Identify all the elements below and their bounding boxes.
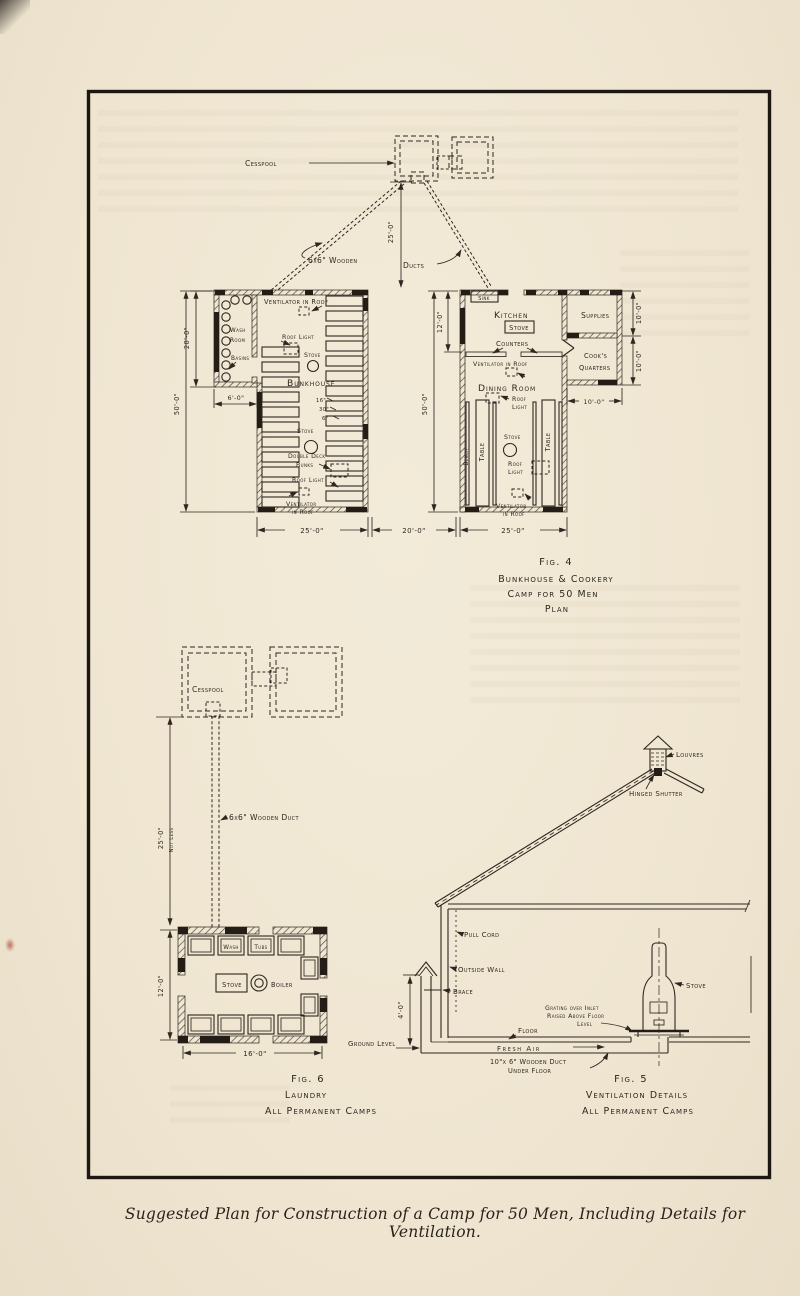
- label-wooden-duct: 6x6" Wooden Duct: [229, 813, 300, 822]
- label-light-b: Light: [508, 469, 523, 476]
- label-cesspool-fig6: Cesspool: [192, 685, 224, 694]
- dim-annex-width: 10'-0": [584, 399, 605, 406]
- label-grating-2: Raised Above Floor: [547, 1013, 604, 1020]
- roof-light-dining-leader: [501, 396, 509, 399]
- page-caption: Suggested Plan for Construction of a Cam…: [90, 1205, 780, 1241]
- label-wash: Wash: [230, 328, 246, 334]
- dim-laundry-width: 16'-0": [243, 1050, 266, 1058]
- duct-label-leader: [590, 1053, 608, 1068]
- label-grating-3: Level: [577, 1021, 593, 1028]
- label-roof-a: Roof: [512, 396, 527, 403]
- bunks-right-column: [326, 296, 363, 501]
- fig4-title-3: Plan: [545, 604, 569, 615]
- label-cooks: Cook's: [584, 352, 607, 360]
- label-ventilator-top: Ventilator in Roof: [264, 298, 328, 306]
- fresh-air-intake: [415, 962, 441, 1053]
- label-ducts: Ducts: [403, 261, 424, 270]
- label-bench: Bench: [464, 448, 470, 465]
- stove-b-circle: [305, 441, 318, 454]
- fig5-stove: [629, 928, 689, 1066]
- label-duct-size: 10"x 6" Wooden Duct: [490, 1058, 567, 1066]
- label-grating-1: Grating over Inlet: [545, 1005, 599, 1012]
- label-roof-light-b: Roof Light: [292, 477, 324, 484]
- fig6-title-2: All Permanent Camps: [265, 1106, 377, 1117]
- under-floor-duct: [421, 1037, 668, 1053]
- label-duct-material: 6x6" Wooden: [308, 256, 358, 265]
- label-table-b: Table: [544, 433, 552, 453]
- stove-dining-circle: [504, 444, 517, 457]
- label-stove-b: Stove: [297, 428, 314, 435]
- label-floor: Floor: [518, 1027, 538, 1035]
- laundry-tubs: [188, 936, 318, 1034]
- label-fig5-stove: Stove: [686, 982, 706, 990]
- dim-intake-height: 4'-0": [397, 1001, 405, 1019]
- label-table-a: Table: [478, 443, 486, 463]
- dim-annex-height: 20'-0": [183, 327, 191, 349]
- label-supplies: Supplies: [581, 311, 609, 320]
- louvres-leader: [666, 754, 674, 757]
- fig5-number: Fig. 5: [614, 1074, 648, 1085]
- fig4-title-1: Bunkhouse & Cookery: [498, 574, 614, 585]
- fig4-cookery-building: Sink Kitchen Stove Counters Ventilator i…: [421, 290, 643, 518]
- label-fresh-air: Fresh Air: [497, 1045, 541, 1053]
- dim-gap: 20'-0": [402, 527, 425, 535]
- hinged-shutter: [654, 768, 662, 776]
- bunk-dim-2: 30": [319, 407, 329, 413]
- annex-door-swing: [563, 340, 574, 356]
- fig6-laundry: Cesspool 6x6" Wooden Duct 25'-0" Not Les…: [156, 647, 377, 1117]
- fig6-cesspool: Cesspool: [182, 647, 342, 717]
- fig4-bunkhouse-building: Wash Room Basins Ventilator in Roof: [173, 290, 368, 516]
- dim-kitchen-depth: 12'-0": [436, 311, 444, 333]
- label-quarters: Quarters: [579, 364, 610, 372]
- label-tubs: Tubs: [253, 945, 267, 951]
- fig4-title-2: Camp for 50 Men: [507, 589, 598, 600]
- label-pull-cord: Pull Cord: [464, 931, 499, 939]
- grating-leader: [601, 1023, 632, 1031]
- label-light-a: Light: [512, 404, 527, 411]
- label-ventilator: Ventilator: [286, 501, 317, 508]
- boiler-outer: [251, 975, 267, 991]
- label-dining-room: Dining Room: [478, 383, 536, 394]
- bunk-dim-3: 6": [322, 416, 329, 422]
- fig6-title-1: Laundry: [285, 1090, 327, 1101]
- label-stove-a: Stove: [304, 352, 321, 359]
- label-brace: Brace: [453, 988, 473, 996]
- fig5-title-1: Ventilation Details: [586, 1090, 688, 1101]
- fig6-caption: Fig. 6 Laundry All Permanent Camps: [265, 1074, 377, 1117]
- label-stove-dining: Stove: [504, 434, 521, 441]
- ventilator-bottom-leader: [289, 492, 297, 496]
- label-basins: Basins: [231, 356, 249, 362]
- fig4-number: Fig. 4: [539, 557, 573, 568]
- fig6-number: Fig. 6: [291, 1074, 325, 1085]
- label-counters: Counters: [496, 340, 528, 348]
- counter-right: [521, 352, 562, 357]
- dim-distance-note: Not Less: [169, 828, 175, 853]
- label-under-floor: Under Floor: [508, 1067, 551, 1075]
- label-cesspool: Cesspool: [245, 159, 277, 168]
- dim-cookery-height: 50'-0": [421, 393, 429, 415]
- dim-supplies: 10'-0": [635, 302, 643, 324]
- fig4-wooden-ducts: 6x6" Wooden Ducts 25'-0": [270, 181, 491, 294]
- ventilator-kitchen-leader: [518, 373, 525, 377]
- dim-annex-width: 6'-0": [228, 395, 245, 402]
- stove-leader: [675, 983, 684, 985]
- outside-wall-leader: [450, 967, 456, 969]
- label-ground-level: Ground Level: [348, 1040, 396, 1048]
- dim-bunkhouse-width: 25'-0": [300, 527, 323, 535]
- label-ventilator-dining: Ventilator: [496, 503, 527, 510]
- fig4-cesspool: Cesspool: [245, 136, 493, 183]
- label-double-deck: Double Deck: [288, 453, 325, 460]
- label-hinged-shutter: Hinged Shutter: [629, 790, 683, 798]
- label-in-roof-dining: in Roof: [503, 511, 525, 518]
- louvre-slats: [651, 753, 665, 765]
- label-roof-light-a: Roof Light: [282, 334, 314, 341]
- stove-a-circle: [308, 361, 319, 372]
- roof-light-a-leader: [281, 341, 290, 345]
- brace-leader: [443, 990, 451, 991]
- fig5-caption: Fig. 5 Ventilation Details All Permanent…: [582, 1074, 694, 1117]
- label-laundry-stove: Stove: [222, 981, 242, 989]
- ventilator-top-leader: [312, 306, 322, 311]
- label-outside-wall: Outside Wall: [458, 966, 505, 974]
- label-kitchen: Kitchen: [494, 310, 528, 321]
- bunk-dim-1: 16": [316, 398, 326, 404]
- label-bunks: Bunks: [296, 462, 313, 469]
- label-bunkhouse: Bunkhouse: [287, 378, 335, 389]
- label-ventilator-kitchen: Ventilator in Roof: [473, 361, 528, 368]
- wooden-duct-leader: [221, 817, 227, 820]
- double-deck-leader: [319, 464, 330, 469]
- label-boiler: Boiler: [271, 981, 293, 989]
- label-stove-kitchen: Stove: [509, 324, 529, 332]
- laundry-building: Wash Tubs Stove Boiler: [178, 927, 327, 1043]
- label-sink: Sink: [478, 296, 490, 302]
- duct-leader-right: [437, 250, 461, 264]
- ventilator-dining-leader: [525, 494, 530, 499]
- blueprint-drawing: Cesspool 6x6" Wooden Ducts 25'-0": [0, 0, 800, 1296]
- label-room: Room: [230, 338, 246, 344]
- fig4-bunkhouse-cookery-plan: Cesspool 6x6" Wooden Ducts 25'-0": [173, 136, 643, 615]
- label-wash-tub: Wash: [223, 945, 239, 951]
- hinged-shutter-leader: [646, 775, 654, 789]
- dim-distance: 25'-0": [157, 827, 165, 849]
- fig5-ventilation-details: Louvres Hinged Shutter: [348, 736, 751, 1117]
- boiler-inner: [255, 979, 263, 987]
- dim-cesspool-distance: 25'-0": [387, 221, 395, 243]
- label-louvres: Louvres: [676, 751, 704, 759]
- fig5-title-2: All Permanent Camps: [582, 1106, 694, 1117]
- counter-left: [466, 352, 506, 357]
- fig4-bottom-dimensions: 25'-0" 20'-0" 25'-0": [257, 517, 567, 537]
- dim-bunkhouse-height: 50'-0": [173, 393, 181, 415]
- dim-laundry-depth: 12'-0": [157, 975, 165, 997]
- dim-cooks: 10'-0": [635, 350, 643, 372]
- fig4-caption: Fig. 4 Bunkhouse & Cookery Camp for 50 M…: [498, 557, 614, 615]
- dim-cookery-width: 25'-0": [501, 527, 524, 535]
- pull-cord-leader: [457, 932, 462, 934]
- label-roof-b: Roof: [508, 461, 523, 468]
- label-in-roof: in Roof: [292, 509, 314, 516]
